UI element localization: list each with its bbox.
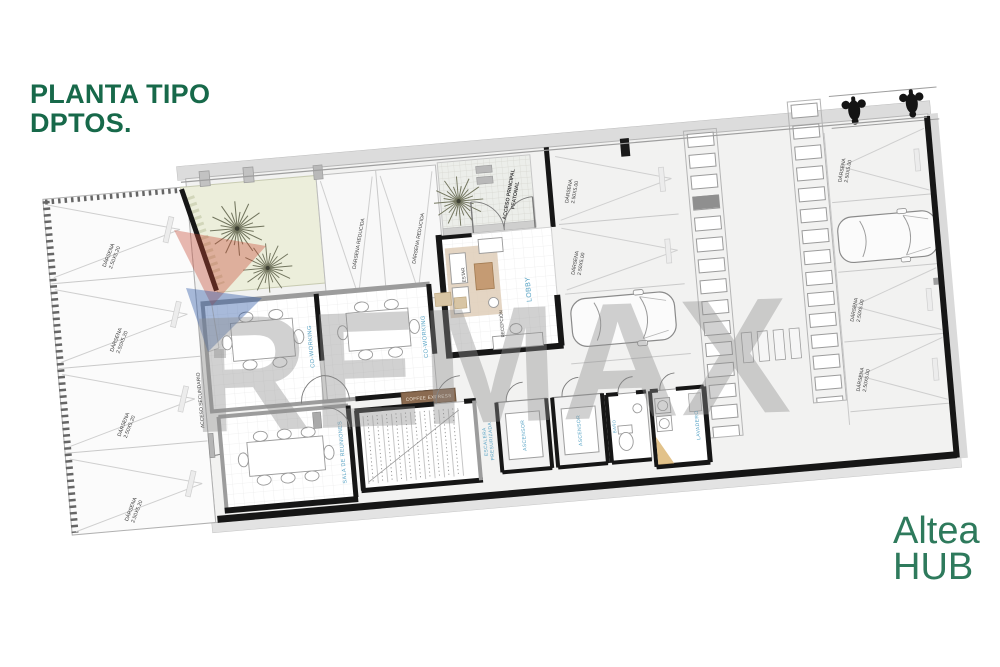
ramp-dark-cell: [693, 194, 720, 209]
plan-rotated-group: DÁRSENA 2.50X5.20 DÁRSENA 2.50X5.20 DÁRS…: [40, 87, 970, 545]
planter: [435, 292, 452, 306]
armchair-icon: [478, 237, 503, 253]
room-meeting: SALA DE REUNIONES: [217, 405, 359, 510]
altea-logo-top: Altea: [893, 513, 980, 549]
coffee-table-icon: [474, 262, 494, 289]
main-entrance: ACCESO PRINCIPAL PEATONAL: [431, 155, 537, 236]
altea-logo-bottom: HUB: [893, 549, 980, 585]
sink-icon: [632, 403, 642, 413]
floor-plan: DÁRSENA 2.50X5.20 DÁRSENA 2.50X5.20 DÁRS…: [0, 0, 1000, 667]
brochure-page: PLANTA TIPO DPTOS.: [0, 0, 1000, 667]
altea-hub-logo: Altea HUB: [893, 513, 980, 585]
planter: [454, 297, 467, 309]
parking-left: DÁRSENA 2.50X5.20 DÁRSENA 2.50X5.20 DÁRS…: [43, 187, 216, 535]
room-lobby: ESTAR LOBBY RECEPCIÓN: [430, 225, 564, 359]
